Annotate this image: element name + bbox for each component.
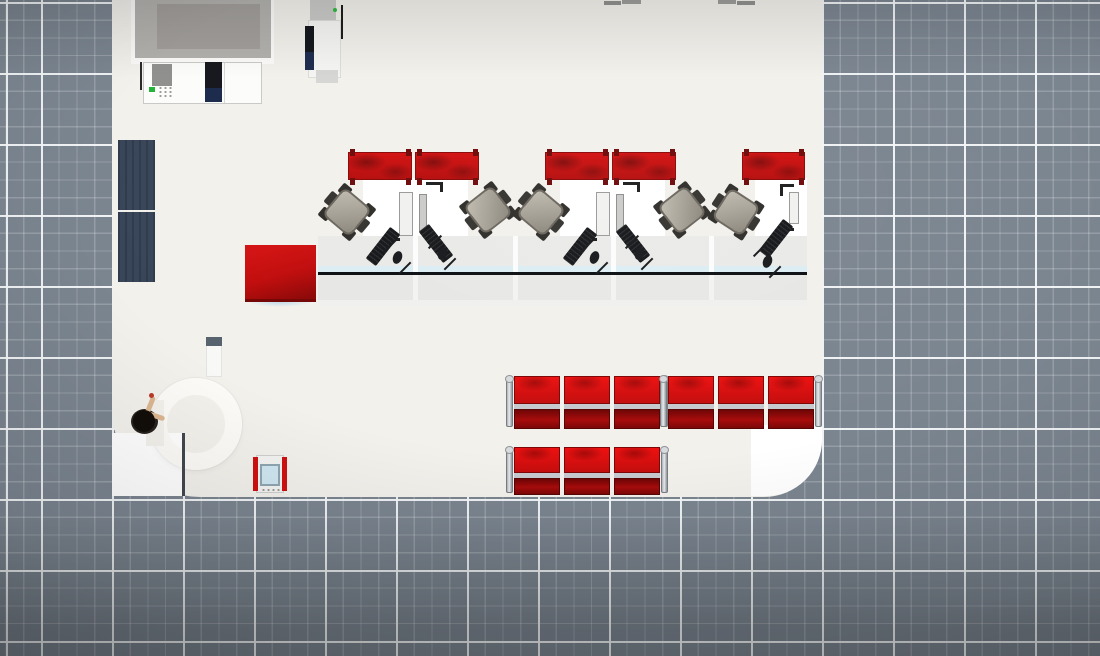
- panel-post: [473, 149, 478, 156]
- panel-post: [744, 178, 749, 185]
- divider-panel[interactable]: [348, 152, 412, 180]
- waiting-bench[interactable]: [668, 376, 814, 429]
- printer-cartridge-navy: [205, 88, 222, 102]
- panel-post: [603, 149, 608, 156]
- mouse[interactable]: [635, 247, 645, 261]
- teller-counter[interactable]: [318, 236, 807, 306]
- seat-arm-knob: [659, 375, 668, 383]
- desk-mark: [637, 182, 640, 192]
- counter-base: [318, 300, 807, 306]
- seat-backrest: [564, 447, 610, 473]
- entry-mat-lower: [118, 212, 155, 282]
- mouse-body: [391, 250, 404, 265]
- printer-led: [149, 87, 155, 92]
- atm-led: [333, 8, 337, 12]
- counter-gap: [513, 275, 518, 300]
- seat-cushion: [514, 409, 560, 429]
- atm-screen-navy: [305, 52, 314, 70]
- red-cube-table[interactable]: [245, 245, 316, 302]
- seat-backrest: [614, 376, 660, 404]
- divider-panel[interactable]: [612, 152, 676, 180]
- panel-post: [670, 178, 675, 185]
- divider-panel[interactable]: [545, 152, 609, 180]
- panel-post: [799, 149, 804, 156]
- printer-copier[interactable]: [140, 60, 264, 104]
- waiting-bench[interactable]: [514, 447, 660, 495]
- person-hair: [133, 410, 155, 432]
- kiosk-vent: [261, 488, 280, 491]
- seat-backrest: [564, 376, 610, 404]
- seat-cushion: [614, 478, 660, 495]
- seat-backrest: [514, 447, 560, 473]
- panel-post: [350, 149, 355, 156]
- ticket-kiosk[interactable]: [253, 455, 287, 493]
- counter-gap: [709, 275, 714, 300]
- panel-post: [417, 149, 422, 156]
- kiosk-red-rail: [253, 457, 258, 491]
- mouse-body: [633, 246, 646, 261]
- floorplan-canvas[interactable]: [0, 0, 1100, 656]
- seat-cushion: [668, 409, 714, 429]
- desk-mark: [780, 184, 783, 196]
- seat-backrest: [668, 376, 714, 404]
- atm-kiosk[interactable]: [300, 0, 345, 85]
- seat-cushion: [564, 478, 610, 495]
- counter-gap: [513, 236, 518, 272]
- seat-arm-post: [661, 449, 668, 493]
- seat-arm-knob: [660, 446, 669, 454]
- printer-cartridge: [205, 62, 222, 90]
- wall-display[interactable]: [131, 0, 274, 64]
- panel-post: [670, 149, 675, 156]
- panel-post: [547, 149, 552, 156]
- divider-panel[interactable]: [415, 152, 479, 180]
- kiosk-red-rail: [282, 457, 287, 491]
- divider-panel[interactable]: [742, 152, 805, 180]
- seat-backrest: [718, 376, 764, 404]
- mouse[interactable]: [590, 251, 600, 265]
- atm-tray: [316, 70, 338, 83]
- seat-cushion: [718, 409, 764, 429]
- seat-arm-post: [506, 378, 513, 427]
- customer-person[interactable]: [131, 404, 167, 440]
- seat-cushion: [614, 409, 660, 429]
- corner-floor-bright: [751, 425, 822, 496]
- mouse[interactable]: [763, 255, 773, 269]
- seat-arm-post: [815, 378, 822, 427]
- display-screen: [157, 4, 260, 49]
- seat-arm-knob: [505, 375, 514, 383]
- panel-post: [744, 149, 749, 156]
- seat-arm-knob: [505, 446, 514, 454]
- panel-post: [614, 149, 619, 156]
- seat-backrest: [614, 447, 660, 473]
- background-chair-top: [718, 0, 736, 4]
- counter-front: [318, 275, 807, 300]
- panel-post: [473, 178, 478, 185]
- counter-gap: [611, 275, 616, 300]
- printer-cable: [140, 62, 142, 90]
- seat-arm-post: [506, 449, 513, 493]
- panel-post: [547, 178, 552, 185]
- counter-gap: [413, 275, 418, 300]
- entrance-door-frame: [182, 433, 185, 496]
- seat-cushion: [768, 409, 814, 429]
- mouse-body: [436, 246, 449, 261]
- seat-backrest: [514, 376, 560, 404]
- monitor: [399, 192, 413, 236]
- background-chair-top: [737, 1, 755, 5]
- printer-keypad: [158, 86, 174, 98]
- printer-seam: [224, 63, 225, 103]
- seat-backrest: [768, 376, 814, 404]
- seat-cushion: [564, 409, 610, 429]
- mouse-body: [588, 250, 601, 265]
- seat-arm-knob: [814, 375, 823, 383]
- person-hand-item: [149, 393, 154, 398]
- waiting-bench[interactable]: [514, 376, 660, 429]
- panel-post: [406, 149, 411, 156]
- panel-post: [350, 178, 355, 185]
- mouse-body: [761, 254, 774, 269]
- counter-gap: [709, 236, 714, 272]
- mouse[interactable]: [393, 251, 403, 265]
- seat-cushion: [514, 478, 560, 495]
- queue-stanchion[interactable]: [206, 337, 222, 377]
- background-chair-top: [604, 1, 621, 5]
- mouse[interactable]: [438, 247, 448, 261]
- stanchion-top: [206, 337, 222, 346]
- desk-mark: [440, 182, 443, 192]
- monitor: [596, 192, 610, 236]
- atm-pole: [341, 5, 343, 39]
- monitor: [789, 192, 799, 224]
- background-chair-top: [622, 0, 641, 4]
- entry-mat-upper: [118, 140, 155, 210]
- seat-arm-post: [660, 378, 667, 427]
- kiosk-screen: [260, 464, 280, 486]
- printer-side-panel: [152, 64, 172, 86]
